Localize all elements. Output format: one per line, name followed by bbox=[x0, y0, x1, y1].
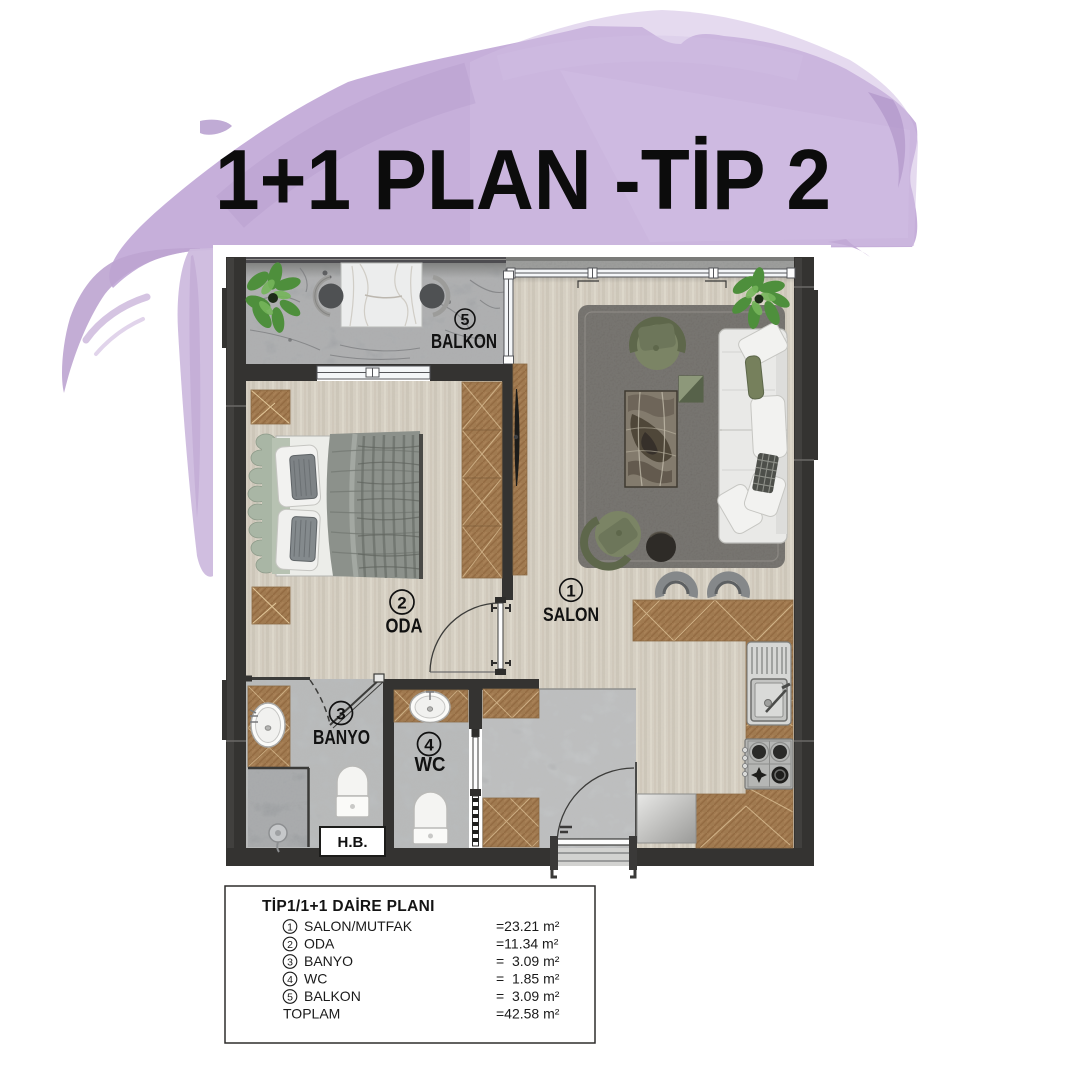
svg-text:=23.21 m²: =23.21 m² bbox=[496, 918, 560, 934]
svg-text:ODA: ODA bbox=[386, 615, 423, 638]
svg-text:BALKON: BALKON bbox=[304, 988, 361, 1004]
svg-text:2: 2 bbox=[397, 594, 406, 613]
svg-text:1: 1 bbox=[287, 921, 293, 933]
svg-text:SALON: SALON bbox=[543, 605, 599, 626]
svg-text:WC: WC bbox=[415, 754, 446, 776]
svg-text:=42.58 m²: =42.58 m² bbox=[496, 1006, 560, 1022]
svg-text:= 1.85 m²: = 1.85 m² bbox=[496, 971, 560, 987]
svg-text:= 3.09 m²: = 3.09 m² bbox=[496, 953, 560, 969]
svg-text:TİP1/1+1 DAİRE PLANI: TİP1/1+1 DAİRE PLANI bbox=[262, 898, 435, 915]
svg-text:5: 5 bbox=[461, 312, 470, 329]
svg-text:TOPLAM: TOPLAM bbox=[283, 1006, 340, 1022]
svg-text:4: 4 bbox=[424, 736, 434, 755]
svg-text:3: 3 bbox=[336, 705, 345, 724]
svg-text:= 3.09 m²: = 3.09 m² bbox=[496, 988, 560, 1004]
svg-text:BANYO: BANYO bbox=[304, 953, 353, 969]
svg-text:=11.34 m²: =11.34 m² bbox=[496, 936, 559, 952]
svg-text:H.B.: H.B. bbox=[338, 834, 368, 851]
svg-text:2: 2 bbox=[287, 939, 293, 951]
svg-text:3: 3 bbox=[287, 956, 293, 968]
svg-text:SALON/MUTFAK: SALON/MUTFAK bbox=[304, 918, 413, 934]
svg-text:1+1 PLAN -TİP 2: 1+1 PLAN -TİP 2 bbox=[215, 133, 831, 228]
svg-text:1: 1 bbox=[566, 582, 575, 601]
svg-text:4: 4 bbox=[287, 974, 293, 986]
svg-text:BALKON: BALKON bbox=[431, 331, 497, 353]
svg-text:WC: WC bbox=[304, 971, 327, 987]
svg-text:5: 5 bbox=[287, 991, 293, 1003]
svg-text:ODA: ODA bbox=[304, 936, 335, 952]
svg-text:BANYO: BANYO bbox=[313, 727, 370, 749]
